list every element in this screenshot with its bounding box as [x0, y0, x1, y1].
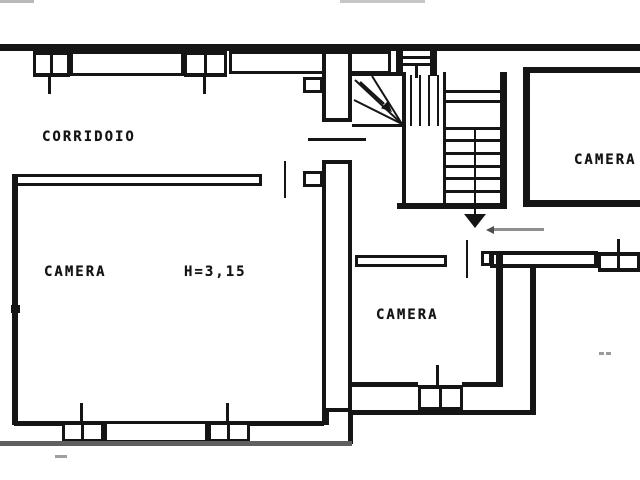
door-leaf-middle-room	[466, 240, 468, 278]
window-mullion	[81, 423, 84, 441]
door-jamb	[303, 77, 323, 93]
window-frame	[104, 421, 208, 443]
window-tick	[226, 403, 229, 422]
landing-south-wall	[490, 251, 598, 268]
scan-artifact	[340, 0, 425, 3]
stair-winder-lines	[352, 74, 404, 126]
room-label-middle: CAMERA	[376, 307, 439, 323]
window-frame	[70, 51, 184, 76]
stair-direction-line	[474, 127, 476, 215]
corridor-south-wall	[12, 174, 262, 186]
exterior-wall-left	[12, 174, 18, 425]
window-shutter-box	[33, 51, 70, 77]
middle-room-bottom-wall	[352, 382, 418, 387]
exterior-wall-south	[0, 441, 352, 446]
exterior-wall-step	[348, 412, 353, 444]
window-shutter-box	[62, 421, 104, 443]
scan-artifact	[55, 455, 67, 458]
window-tick	[48, 75, 51, 94]
right-room-bottom-wall	[523, 200, 640, 207]
exterior-wall-top	[0, 44, 640, 51]
window-shutter-box	[418, 385, 463, 411]
stair-riser	[428, 75, 430, 126]
window-tick	[436, 365, 439, 385]
closet-partition-wall	[355, 255, 447, 267]
stair-bottom-wall	[397, 203, 507, 209]
bearing-wall-upper	[322, 50, 352, 122]
stair-landing-line	[446, 100, 507, 103]
window-mullion	[439, 387, 442, 409]
window-mullion	[617, 254, 620, 270]
stair-riser	[419, 75, 421, 126]
window-tick	[80, 403, 83, 422]
direction-line	[492, 228, 544, 231]
right-room-top-wall	[523, 67, 640, 73]
exterior-wall-southeast	[350, 410, 536, 415]
right-room-left-wall	[523, 67, 530, 207]
window-mullion	[227, 423, 230, 441]
direction-arrowhead	[486, 226, 494, 234]
stair-riser	[437, 75, 439, 126]
bottom-right-room-left-wall	[530, 268, 536, 413]
stair-down-arrowhead	[464, 214, 486, 228]
door-leaf-left-room	[284, 161, 286, 198]
door-jamb	[303, 171, 323, 187]
stair-right-wall	[500, 72, 507, 209]
bearing-wall-lower	[322, 160, 352, 412]
window-shutter-box	[598, 252, 640, 272]
window-tick	[203, 75, 206, 94]
room-label-corridor: CORRIDOIO	[42, 129, 136, 145]
room-height-label: H=3,15	[184, 264, 247, 280]
room-label-right: CAMERA	[574, 152, 637, 168]
window-tick	[617, 239, 620, 254]
stair-wall-inner	[402, 72, 406, 209]
room-label-left: CAMERA	[44, 264, 107, 280]
door-dash	[308, 138, 366, 141]
entry-door-jamb	[430, 45, 437, 76]
stair-landing-line	[446, 90, 507, 93]
scan-artifact	[0, 0, 34, 3]
floor-plan: CORRIDOIO CAMERA	[0, 0, 640, 480]
entry-step-line	[403, 56, 430, 59]
window-mullion	[204, 53, 207, 75]
middle-room-bottom-wall	[462, 382, 503, 387]
middle-room-right-wall	[496, 252, 503, 387]
window-mullion	[50, 53, 53, 75]
stair-riser	[410, 75, 412, 126]
window-frame	[229, 51, 391, 74]
window-shutter-box	[208, 421, 250, 443]
entry-divider	[415, 66, 418, 78]
wall-section-mark	[11, 305, 20, 313]
scan-artifact	[606, 352, 611, 355]
scan-artifact	[599, 352, 604, 355]
window-shutter-box	[184, 51, 227, 77]
